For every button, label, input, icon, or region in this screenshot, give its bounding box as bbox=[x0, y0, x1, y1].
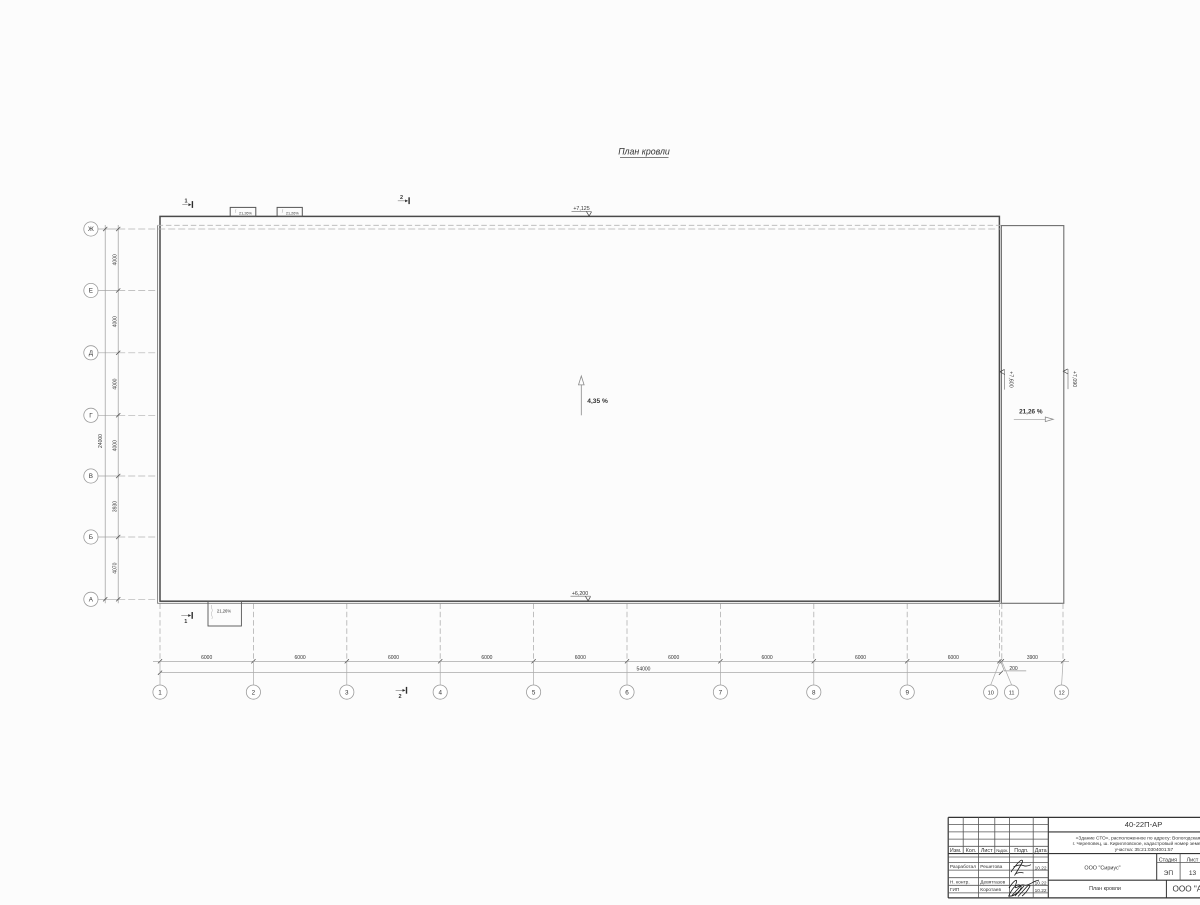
svg-text:Коротаев: Коротаев bbox=[980, 887, 1001, 893]
svg-text:3930: 3930 bbox=[113, 501, 119, 512]
svg-text:Г: Г bbox=[89, 413, 93, 420]
svg-text:План кровли: План кровли bbox=[1089, 886, 1121, 892]
svg-text:ООО "Ар: ООО "Ар bbox=[1173, 884, 1200, 893]
svg-text:2: 2 bbox=[252, 689, 256, 696]
svg-text:участка: 35:21:0304001:57: участка: 35:21:0304001:57 bbox=[1115, 847, 1174, 853]
svg-text:40-22П-АР: 40-22П-АР bbox=[1125, 820, 1163, 829]
svg-text:Н. контр.: Н. контр. bbox=[950, 880, 970, 886]
svg-text:ЭП: ЭП bbox=[1164, 870, 1174, 877]
svg-text:12: 12 bbox=[1058, 690, 1064, 696]
svg-text:4000: 4000 bbox=[113, 316, 119, 327]
svg-text:Подп.: Подп. bbox=[1014, 848, 1028, 854]
svg-text:4000: 4000 bbox=[113, 440, 119, 451]
svg-text:8: 8 bbox=[812, 689, 816, 696]
svg-text:1: 1 bbox=[184, 619, 187, 625]
svg-text:200: 200 bbox=[1009, 666, 1018, 672]
svg-text:7: 7 bbox=[719, 689, 723, 696]
svg-text:6000: 6000 bbox=[388, 655, 399, 661]
svg-text:21,26%: 21,26% bbox=[286, 212, 300, 216]
svg-text:6000: 6000 bbox=[668, 655, 679, 661]
svg-text:1: 1 bbox=[158, 689, 162, 696]
svg-text:4: 4 bbox=[438, 689, 442, 696]
svg-text:4,35 %: 4,35 % bbox=[587, 398, 608, 405]
svg-text:ООО "Сириус": ООО "Сириус" bbox=[1084, 865, 1120, 871]
svg-text:21,26%: 21,26% bbox=[239, 212, 253, 216]
svg-text:21,26%: 21,26% bbox=[217, 608, 231, 613]
svg-text:6: 6 bbox=[625, 689, 629, 696]
svg-text:Д: Д bbox=[89, 350, 94, 357]
svg-text:6000: 6000 bbox=[948, 655, 959, 661]
svg-text:Ж: Ж bbox=[88, 226, 94, 233]
svg-text:6000: 6000 bbox=[575, 655, 586, 661]
svg-text:6000: 6000 bbox=[481, 655, 492, 661]
svg-text:Е: Е bbox=[89, 288, 93, 295]
svg-text:г. Череповец, ш. Кирилловское,: г. Череповец, ш. Кирилловское, кадастров… bbox=[1073, 840, 1200, 847]
svg-text:10: 10 bbox=[988, 690, 994, 696]
svg-text:Лист: Лист bbox=[1187, 857, 1199, 863]
svg-text:4000: 4000 bbox=[113, 378, 119, 389]
svg-text:Девятгазов: Девятгазов bbox=[980, 880, 1005, 886]
svg-text:№док.: №док. bbox=[996, 848, 1008, 853]
svg-text:11: 11 bbox=[1009, 690, 1015, 696]
svg-text:21,26 %: 21,26 % bbox=[1019, 408, 1043, 415]
svg-text:6000: 6000 bbox=[855, 655, 866, 661]
svg-text:2: 2 bbox=[398, 694, 401, 700]
svg-text:ГИП: ГИП bbox=[950, 887, 960, 893]
svg-text:Кол.: Кол. bbox=[966, 848, 977, 854]
svg-text:9: 9 bbox=[905, 689, 909, 696]
svg-text:6000: 6000 bbox=[295, 655, 306, 661]
svg-text:13: 13 bbox=[1189, 870, 1197, 877]
svg-text:4000: 4000 bbox=[113, 254, 119, 265]
svg-text:24000: 24000 bbox=[98, 434, 104, 448]
svg-text:В: В bbox=[89, 473, 93, 480]
svg-text:54000: 54000 bbox=[637, 667, 651, 673]
svg-text:Решетова: Решетова bbox=[980, 864, 1002, 870]
svg-text:1: 1 bbox=[184, 199, 187, 205]
svg-text:Изм.: Изм. bbox=[950, 848, 962, 854]
svg-text:Лист: Лист bbox=[981, 848, 993, 854]
svg-text:6000: 6000 bbox=[762, 655, 773, 661]
svg-text:Стадия: Стадия bbox=[1159, 857, 1177, 863]
svg-text:10.22: 10.22 bbox=[1035, 865, 1047, 871]
svg-text:3900: 3900 bbox=[1027, 655, 1038, 661]
svg-text:План кровли: План кровли bbox=[618, 147, 670, 157]
svg-text:6000: 6000 bbox=[201, 655, 212, 661]
svg-text:«Здание СТО», расположенное по: «Здание СТО», расположенное по адресу: В… bbox=[1076, 836, 1200, 842]
svg-text:10.22: 10.22 bbox=[1035, 881, 1047, 887]
svg-text:2: 2 bbox=[400, 195, 403, 201]
svg-text:Дата: Дата bbox=[1035, 848, 1047, 854]
svg-text:3: 3 bbox=[345, 689, 349, 696]
svg-text:Разработал: Разработал bbox=[950, 864, 976, 870]
svg-text:5: 5 bbox=[532, 689, 536, 696]
svg-text:10.22: 10.22 bbox=[1035, 888, 1047, 894]
svg-text:Б: Б bbox=[89, 534, 93, 541]
svg-text:+7,090: +7,090 bbox=[1071, 371, 1077, 387]
svg-text:4070: 4070 bbox=[113, 562, 119, 573]
svg-text:+7,600: +7,600 bbox=[1008, 371, 1014, 387]
